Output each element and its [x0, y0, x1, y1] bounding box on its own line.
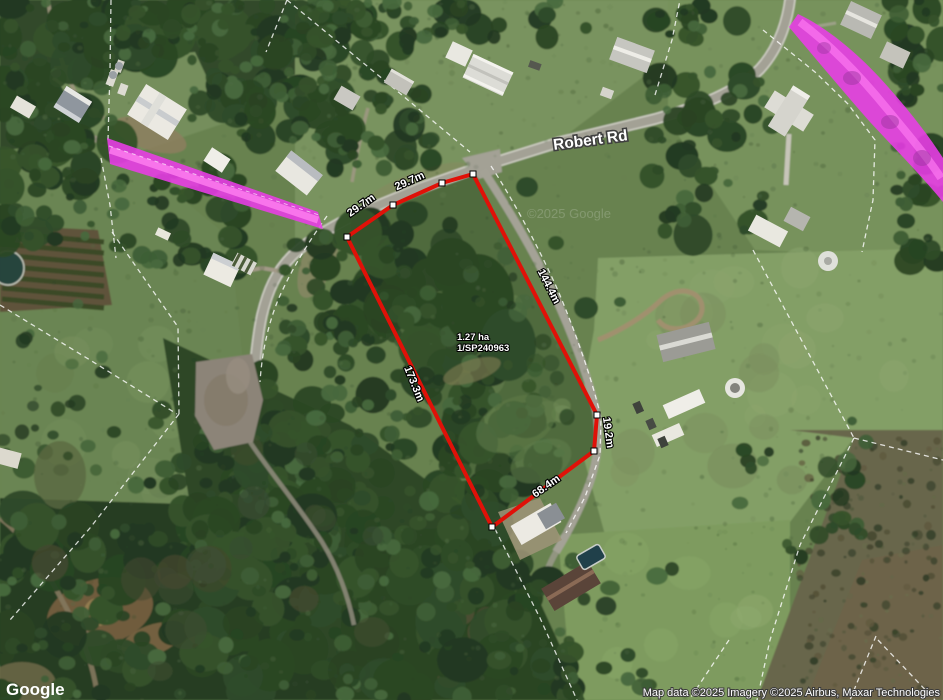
svg-text:Google: Google — [6, 680, 65, 699]
svg-text:Map data ©2025 Imagery ©2025 A: Map data ©2025 Imagery ©2025 Airbus, Max… — [643, 687, 941, 699]
svg-text:©2025 Google: ©2025 Google — [527, 206, 611, 221]
svg-text:1.27 ha: 1.27 ha — [457, 332, 490, 343]
svg-text:1/SP240963: 1/SP240963 — [457, 343, 509, 354]
